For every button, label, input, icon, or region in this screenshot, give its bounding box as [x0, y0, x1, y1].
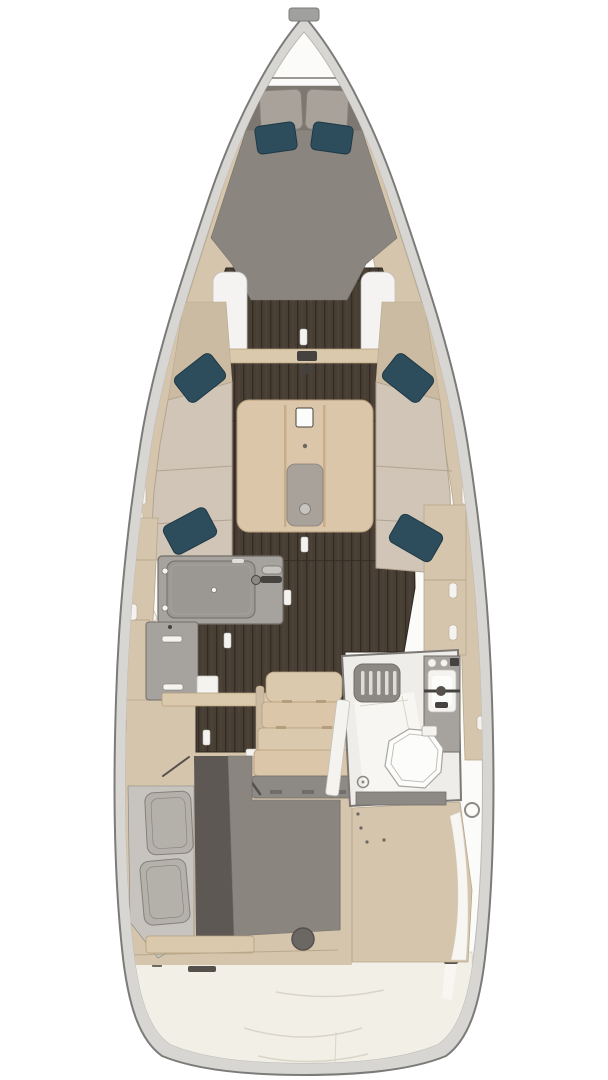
pillow-teal	[310, 121, 354, 154]
bow-cap	[289, 8, 319, 21]
sink-faucet-lever	[260, 576, 282, 583]
stern-dash	[188, 966, 216, 972]
sink-faucet-icon	[252, 576, 261, 585]
stove-hinge	[162, 568, 168, 574]
pillow-teal	[254, 121, 298, 154]
step-handle	[300, 365, 314, 374]
grate-slat	[377, 671, 381, 695]
deck-dot	[356, 812, 359, 815]
drain-dot	[362, 781, 365, 784]
floor-hatch-handle	[284, 590, 291, 605]
deck-dot	[382, 838, 385, 841]
cabinet-slot	[449, 583, 457, 598]
aft-berth-dark-band	[194, 756, 234, 940]
faucet-lever	[436, 686, 446, 696]
deck-dot	[359, 826, 362, 829]
grate-slat	[361, 671, 365, 695]
vanity-fitting	[428, 659, 436, 667]
vanity-fitting-dark	[450, 658, 459, 666]
boat-floor-plan	[0, 0, 608, 1080]
grate-slat	[385, 671, 389, 695]
step-seam	[302, 790, 314, 794]
floor-hatch-handle	[203, 730, 210, 745]
toilet-icon	[385, 729, 443, 788]
faucet-handle	[435, 702, 448, 708]
floor-hatch-handle	[301, 537, 308, 552]
step-seam	[276, 726, 286, 729]
aft-step	[146, 936, 254, 953]
cabinet-dot	[168, 625, 172, 629]
cabinet-slot	[449, 625, 457, 640]
step-seam	[282, 700, 292, 703]
galley-logo	[232, 559, 244, 563]
step-seam	[322, 726, 332, 729]
boat-floor-plan-page	[0, 0, 608, 1080]
step-seam	[270, 790, 282, 794]
step-seam	[316, 700, 326, 703]
floor-hatch-handle	[224, 633, 231, 648]
floor-hatch-handle	[300, 329, 307, 345]
pillow-aft	[139, 858, 190, 926]
toilet-tank	[422, 726, 437, 736]
heads-sill	[356, 792, 446, 805]
table-groove	[284, 405, 287, 527]
hatch-icon	[292, 928, 314, 950]
deck-dot	[365, 840, 368, 843]
step-handle	[297, 351, 317, 361]
table-dot	[303, 444, 307, 448]
grate-slat	[369, 671, 373, 695]
drawer-slot	[163, 684, 183, 690]
stove-hinge	[162, 605, 168, 611]
stove-knob	[212, 588, 217, 593]
table-lamp	[296, 408, 313, 427]
companionway-step	[266, 672, 342, 702]
grate-slat	[393, 671, 397, 695]
table-inset-emblem	[300, 504, 311, 515]
galley-sink	[262, 566, 282, 574]
table-inset	[287, 464, 323, 526]
stove-icon	[167, 561, 255, 618]
vanity-fitting	[441, 660, 448, 667]
drawer-slot	[162, 636, 182, 642]
companionway-step	[262, 702, 346, 728]
